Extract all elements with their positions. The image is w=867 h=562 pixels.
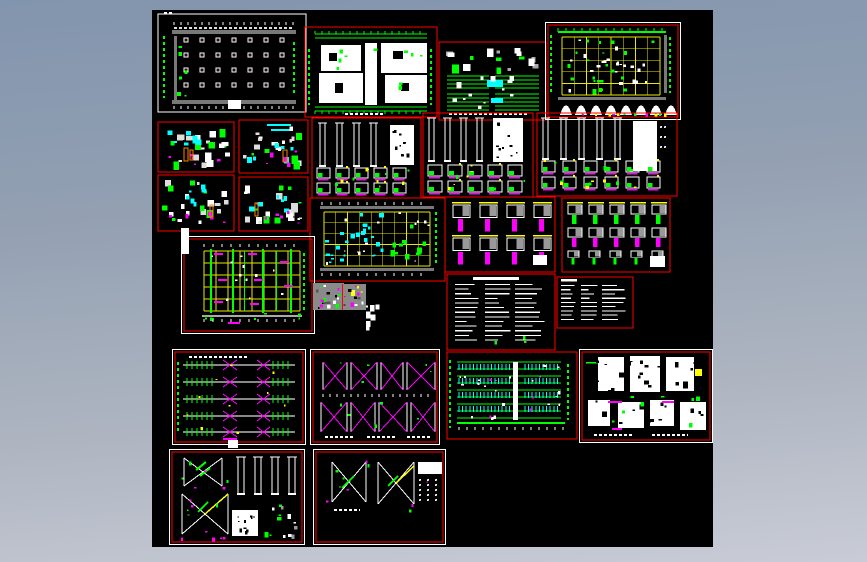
panel-bracing-elevations[interactable] [311,350,440,445]
panel-detail-b2[interactable] [239,120,308,173]
panel-connection-details[interactable] [580,350,713,443]
panel-beam-layout-plan[interactable] [310,198,445,281]
panel-notes-table-1[interactable] [447,274,555,350]
panel-roof-plan[interactable] [182,237,315,334]
panel-truss-elevation[interactable] [447,352,577,439]
panel-detail-b3[interactable] [158,175,234,231]
block-3d-view-1[interactable] [313,283,344,310]
panel-column-elevations-1[interactable] [312,118,421,198]
panel-column-elevations-3[interactable] [537,113,677,196]
workspace-background [0,0,867,562]
panel-beam-details-a[interactable] [439,42,546,120]
panel-column-elevations-2[interactable] [423,113,533,197]
panel-column-sections-1[interactable] [445,197,555,272]
drawing-canvas[interactable] [152,10,713,547]
panel-foundation-plan[interactable] [158,14,306,112]
panel-floor-framing-bracing[interactable] [173,350,306,445]
panel-detail-b4[interactable] [239,177,308,231]
panel-detail-b1[interactable] [158,122,234,172]
panel-notes-table-2[interactable] [557,277,633,328]
block-3d-view-2[interactable] [342,284,366,310]
panel-slab-plan[interactable] [305,27,437,117]
panel-roof-framing-plan[interactable] [546,23,681,120]
panel-xbrace-details-1[interactable] [170,450,305,545]
panel-column-sections-2[interactable] [562,198,670,272]
panel-xbrace-details-2[interactable] [314,450,446,545]
